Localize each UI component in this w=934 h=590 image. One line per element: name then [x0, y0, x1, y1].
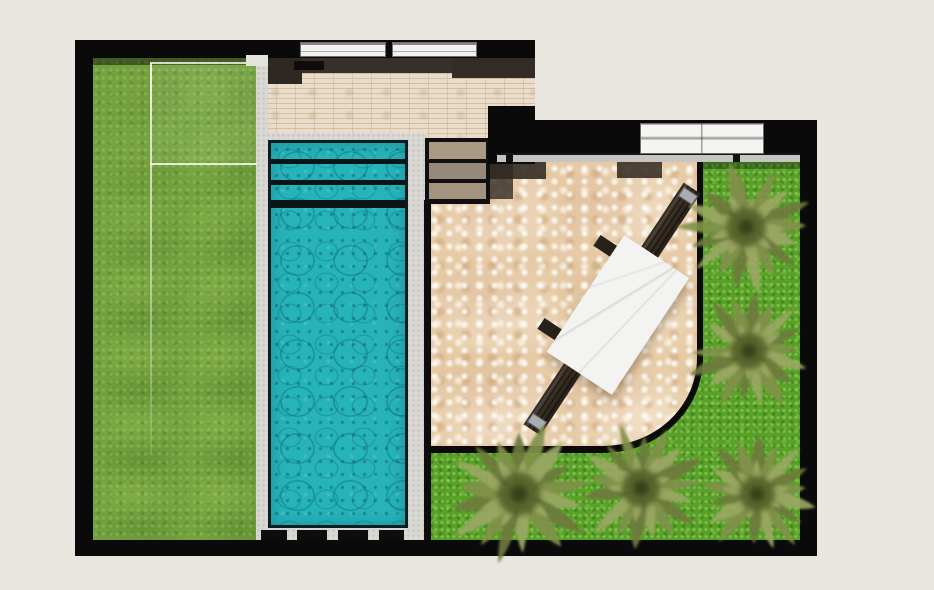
step-tread-2 [429, 163, 486, 179]
sliding-door-top-2 [392, 42, 477, 57]
sliding-door-top-1 [300, 42, 386, 57]
patio-edge-line [424, 200, 431, 540]
facade-shadow-4 [294, 61, 324, 70]
coping-upper-strip [256, 56, 268, 136]
patio-shadow-3 [617, 162, 662, 178]
bed-line-vertical [150, 63, 152, 455]
patio-shadow-2 [490, 162, 513, 199]
pool-water [268, 140, 408, 528]
door-stop-1 [506, 154, 513, 162]
palm-tree-2 [671, 273, 827, 429]
pool-bottom-dash-1 [261, 530, 287, 540]
site-plan-canvas [0, 0, 934, 590]
bed-line-horizontal [150, 163, 257, 165]
corner-paver [246, 55, 268, 66]
pool-bottom-dash-3 [338, 530, 368, 540]
facade-shadow-3 [452, 58, 535, 78]
step-tread-1 [429, 142, 486, 159]
pool-step-line-1 [271, 159, 405, 164]
pool-step-line-2 [271, 180, 405, 185]
step-tread-3 [429, 183, 486, 199]
wall-left [75, 40, 93, 556]
pool-bottom-dash-4 [379, 530, 404, 540]
bed-line-top [150, 62, 257, 64]
pool-step-line-3 [271, 200, 405, 208]
planting-bed-overlay [150, 63, 257, 164]
palm-tree-5 [431, 406, 607, 582]
pool-bottom-dash-2 [297, 530, 327, 540]
palm-tree-4 [681, 418, 833, 570]
